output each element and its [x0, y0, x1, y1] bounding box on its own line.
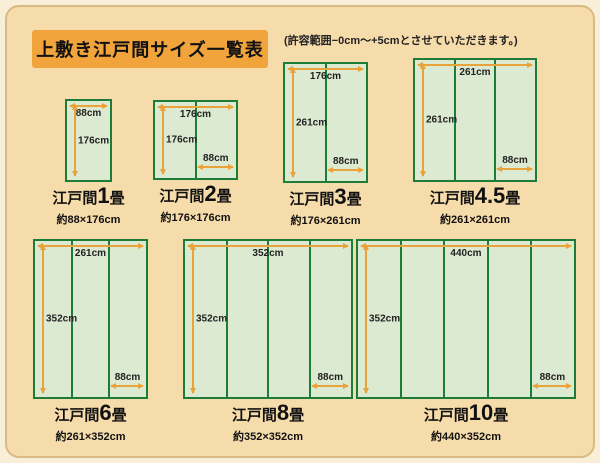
- mat-size-label: 約88×176cm: [52, 211, 124, 227]
- tatami-mat: 88cm 176cm: [65, 99, 112, 182]
- bottom-dimension-label: 88cm: [531, 372, 574, 383]
- dimension-arrow-horizontal: [198, 166, 234, 168]
- top-dimension-label: 440cm: [358, 248, 574, 259]
- diagram-caption: 江戸間3畳 約176×261cm: [289, 187, 361, 228]
- dimension-arrow-vertical: [74, 105, 76, 176]
- top-dimension-label: 176cm: [285, 71, 366, 82]
- mat-name-label: 江戸間1畳: [52, 186, 124, 209]
- mat-size-label: 約261×352cm: [54, 428, 126, 444]
- left-dimension-label: 352cm: [369, 314, 400, 325]
- dimension-arrow-horizontal: [111, 385, 143, 387]
- diagram-edoma-6jo: 261cm 352cm 88cm 江戸間6畳 約261×352cm: [33, 239, 148, 444]
- dimension-arrow-vertical: [365, 245, 367, 393]
- mat-size-label: 約352×352cm: [232, 428, 304, 444]
- tatami-mat: 261cm 352cm 88cm: [33, 239, 148, 399]
- diagram-caption: 江戸間4.5畳 約261×261cm: [430, 186, 521, 227]
- mat-name-label: 江戸間6畳: [54, 403, 126, 426]
- top-dimension-label: 261cm: [35, 248, 146, 259]
- top-dimension-label: 176cm: [155, 109, 236, 120]
- dimension-arrow-vertical: [192, 245, 194, 393]
- bottom-dimension-label: 88cm: [495, 155, 535, 166]
- bottom-dimension-label: 88cm: [326, 156, 367, 167]
- mat-name-label: 江戸間4.5畳: [430, 186, 521, 209]
- diagram-edoma-3jo: 176cm 261cm 88cm 江戸間3畳 約176×261cm: [283, 62, 368, 228]
- dimension-arrow-horizontal: [361, 245, 571, 247]
- dimension-arrow-horizontal: [158, 106, 233, 108]
- mat-size-label: 約440×352cm: [424, 428, 509, 444]
- top-dimension-label: 261cm: [415, 67, 535, 78]
- tolerance-note: (許容範囲−0cm〜+5cmとさせていただきます。): [284, 32, 518, 48]
- diagram-edoma-2jo: 176cm 176cm 88cm 江戸間2畳 約176×176cm: [153, 100, 238, 225]
- left-dimension-label: 176cm: [78, 135, 109, 146]
- tatami-mat: 440cm 352cm 88cm: [356, 239, 576, 399]
- page-background: { "page": { "title": "上敷き江戸間サイズ一覧表", "no…: [0, 0, 600, 463]
- bottom-dimension-label: 88cm: [310, 372, 352, 383]
- left-dimension-label: 176cm: [166, 135, 197, 146]
- mat-size-label: 約261×261cm: [430, 211, 521, 227]
- diagram-edoma-8jo: 352cm 352cm 88cm 江戸間8畳 約352×352cm: [183, 239, 353, 444]
- tatami-mat: 176cm 176cm 88cm: [153, 100, 238, 180]
- diagram-edoma-1jo: 88cm 176cm 江戸間1畳 約88×176cm: [65, 99, 112, 227]
- dimension-arrow-vertical: [42, 245, 44, 393]
- left-dimension-label: 352cm: [46, 314, 77, 325]
- dimension-arrow-vertical: [422, 64, 424, 176]
- diagram-caption: 江戸間8畳 約352×352cm: [232, 403, 304, 444]
- tatami-mat: 352cm 352cm 88cm: [183, 239, 353, 399]
- dimension-arrow-horizontal: [328, 169, 364, 171]
- mat-divider: [487, 241, 489, 397]
- top-dimension-label: 352cm: [185, 248, 351, 259]
- mat-size-label: 約176×261cm: [289, 212, 361, 228]
- bottom-dimension-label: 88cm: [196, 153, 237, 164]
- mat-name-label: 江戸間2畳: [159, 184, 231, 207]
- page-title: 上敷き江戸間サイズ一覧表: [32, 30, 268, 68]
- tatami-mat: 261cm 261cm 88cm: [413, 58, 537, 182]
- left-dimension-label: 352cm: [196, 314, 227, 325]
- bottom-dimension-label: 88cm: [109, 372, 146, 383]
- diagram-edoma-4-5jo: 261cm 261cm 88cm 江戸間4.5畳 約261×261cm: [413, 58, 537, 227]
- mat-divider: [443, 241, 445, 397]
- dimension-arrow-horizontal: [418, 64, 532, 66]
- diagram-edoma-10jo: 440cm 352cm 88cm 江戸間10畳 約440×352cm: [356, 239, 576, 444]
- tatami-mat: 176cm 261cm 88cm: [283, 62, 368, 183]
- diagram-caption: 江戸間6畳 約261×352cm: [54, 403, 126, 444]
- mat-name-label: 江戸間10畳: [424, 403, 509, 426]
- dimension-arrow-vertical: [292, 68, 294, 177]
- mat-name-label: 江戸間3畳: [289, 187, 361, 210]
- dimension-arrow-horizontal: [533, 385, 571, 387]
- diagram-caption: 江戸間10畳 約440×352cm: [424, 403, 509, 444]
- mat-name-label: 江戸間8畳: [232, 403, 304, 426]
- dimension-arrow-horizontal: [497, 168, 532, 170]
- diagram-caption: 江戸間2畳 約176×176cm: [159, 184, 231, 225]
- dimension-arrow-horizontal: [288, 68, 363, 70]
- dimension-arrow-horizontal: [188, 245, 348, 247]
- mat-size-label: 約176×176cm: [159, 209, 231, 225]
- dimension-arrow-horizontal: [38, 245, 143, 247]
- left-dimension-label: 261cm: [296, 117, 327, 128]
- mat-divider: [267, 241, 269, 397]
- dimension-arrow-vertical: [162, 106, 164, 174]
- diagram-caption: 江戸間1畳 約88×176cm: [52, 186, 124, 227]
- dimension-arrow-horizontal: [312, 385, 349, 387]
- mat-divider: [400, 241, 402, 397]
- left-dimension-label: 261cm: [426, 115, 457, 126]
